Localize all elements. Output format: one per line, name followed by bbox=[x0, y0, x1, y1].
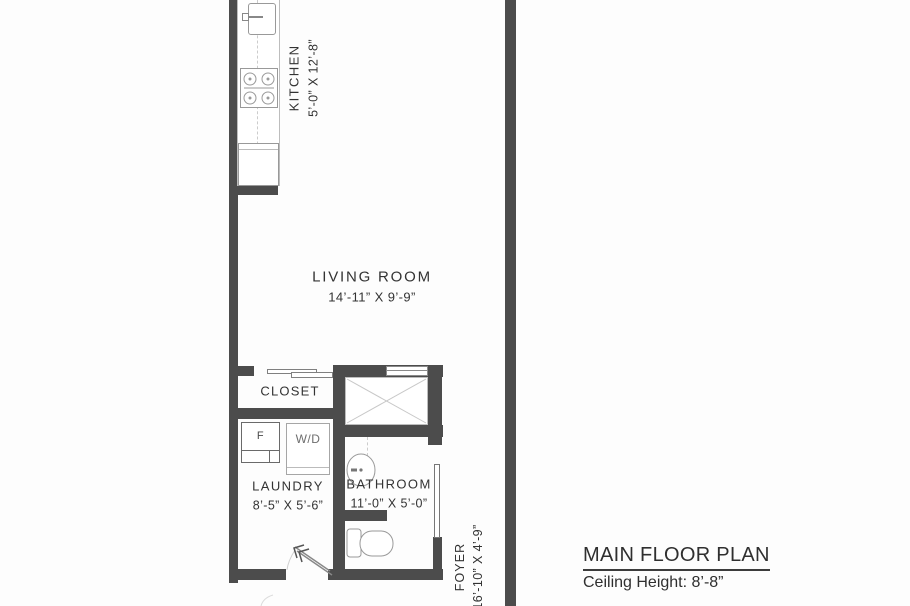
laundry-name: LAUNDRY bbox=[252, 478, 324, 497]
toilet bbox=[347, 529, 393, 557]
plan-fixtures-svg bbox=[0, 0, 910, 606]
stove-burners-icon bbox=[244, 73, 274, 104]
room-label-bathroom: BATHROOM 11’-0” X 5’-0” bbox=[346, 476, 431, 513]
plan-title-block: MAIN FLOOR PLAN Ceiling Height: 8’-8” bbox=[583, 544, 770, 592]
kitchen-name: KITCHEN bbox=[286, 39, 305, 117]
closet-name: CLOSET bbox=[260, 383, 319, 402]
kitchen-dims: 5’-0” X 12’-8” bbox=[304, 39, 322, 117]
exterior-step-arc bbox=[261, 595, 273, 606]
living-room-name: LIVING ROOM bbox=[312, 267, 432, 289]
room-label-foyer: FOYER 16’-10” X 4’-9” bbox=[451, 524, 487, 606]
foyer-name: FOYER bbox=[451, 524, 469, 606]
bathroom-dims: 11’-0” X 5’-0” bbox=[346, 494, 431, 512]
ceiling-height-note: Ceiling Height: 8’-8” bbox=[583, 574, 770, 592]
foyer-dims: 16’-10” X 4’-9” bbox=[469, 524, 487, 606]
room-label-closet: CLOSET bbox=[260, 383, 319, 402]
entry-door bbox=[287, 545, 332, 575]
room-label-living-room: LIVING ROOM 14’-11” X 9’-9” bbox=[312, 267, 432, 308]
plan-title: MAIN FLOOR PLAN bbox=[583, 544, 770, 571]
laundry-dims: 8’-5” X 5’-6” bbox=[252, 496, 324, 514]
shower-x-pattern bbox=[347, 379, 426, 423]
bathroom-name: BATHROOM bbox=[346, 476, 431, 495]
floor-plan-canvas: F W/D bbox=[0, 0, 910, 606]
room-label-kitchen: KITCHEN 5’-0” X 12’-8” bbox=[286, 39, 323, 117]
room-label-laundry: LAUNDRY 8’-5” X 5’-6” bbox=[252, 478, 324, 515]
living-room-dims: 14’-11” X 9’-9” bbox=[312, 288, 432, 307]
